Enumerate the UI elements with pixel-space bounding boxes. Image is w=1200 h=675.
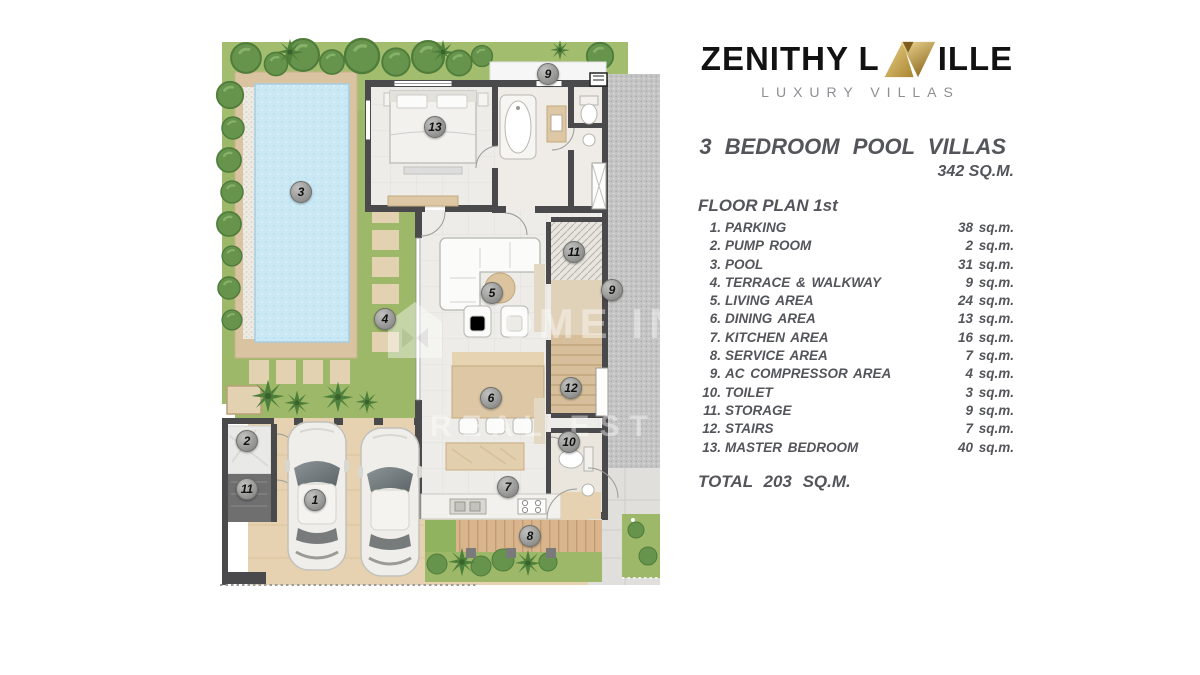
legend-label: TERRACE & WALKWAY: [725, 275, 942, 290]
legend-row: 7. KITCHEN AREA 16 sq.m.: [698, 330, 1016, 348]
legend-num: 3.: [698, 257, 725, 272]
legend-area: 9 sq.m.: [942, 275, 1016, 290]
legend-num: 8.: [698, 348, 725, 363]
legend-area: 31 sq.m.: [942, 257, 1016, 272]
legend-num: 9.: [698, 366, 725, 381]
plan-badge-terrace: 4: [374, 308, 396, 330]
legend-num: 1.: [698, 220, 725, 235]
legend-label: STAIRS: [725, 421, 942, 436]
legend-label: PARKING: [725, 220, 942, 235]
legend-num: 7.: [698, 330, 725, 345]
plan-badge-kitchen: 7: [497, 476, 519, 498]
legend-row: 3. POOL 31 sq.m.: [698, 257, 1016, 275]
watermark-line1: OME IN: [500, 300, 670, 347]
page-title: 3 BEDROOM POOL VILLAS: [698, 134, 1016, 160]
legend-num: 12.: [698, 421, 725, 436]
legend-row: 5. LIVING AREA 24 sq.m.: [698, 293, 1016, 311]
plan-badge-dining: 6: [480, 387, 502, 409]
legend-label: LIVING AREA: [725, 293, 942, 308]
brand-logo: ZENITHY L ILLE: [698, 40, 1016, 78]
legend-num: 4.: [698, 275, 725, 290]
legend-row: 6. DINING AREA 13 sq.m.: [698, 311, 1016, 329]
legend-row: 9. AC COMPRESSOR AREA 4 sq.m.: [698, 366, 1016, 384]
total-build-area: 342 SQ.M.: [698, 163, 1016, 181]
legend-row: 2. PUMP ROOM 2 sq.m.: [698, 238, 1016, 256]
legend-row: 1. PARKING 38 sq.m.: [698, 220, 1016, 238]
legend-num: 11.: [698, 403, 725, 418]
plan-badge-parking: 1: [304, 489, 326, 511]
legend-num: 13.: [698, 440, 725, 455]
floor-plan: OME IN REAL EST 1 2 3 4 5 6 7 8 9 9 10 1…: [200, 30, 670, 600]
legend-row: 13. MASTER BEDROOM 40 sq.m.: [698, 440, 1016, 458]
plan-badge-storage-stairs: 11: [563, 241, 585, 263]
plan-badge-living: 5: [481, 282, 503, 304]
legend-num: 2.: [698, 238, 725, 253]
legend-label: PUMP ROOM: [725, 238, 942, 253]
floor-plan-label: FLOOR PLAN 1st: [698, 196, 1016, 216]
legend-num: 10.: [698, 385, 725, 400]
plan-badge-storage-garage: 11: [236, 478, 258, 500]
legend-label: TOILET: [725, 385, 942, 400]
plan-badge-toilet: 10: [558, 431, 580, 453]
area-legend: 1. PARKING 38 sq.m. 2. PUMP ROOM 2 sq.m.…: [698, 220, 1016, 458]
legend-label: SERVICE AREA: [725, 348, 942, 363]
plan-badge-stairs: 12: [560, 377, 582, 399]
legend-area: 7 sq.m.: [942, 421, 1016, 436]
legend-num: 5.: [698, 293, 725, 308]
legend-area: 13 sq.m.: [942, 311, 1016, 326]
legend-area: 4 sq.m.: [942, 366, 1016, 381]
logo-subtitle: LUXURY VILLAS: [698, 84, 1016, 100]
legend-label: AC COMPRESSOR AREA: [725, 366, 942, 381]
legend-area: 24 sq.m.: [942, 293, 1016, 308]
plan-badge-master-bedroom: 13: [424, 116, 446, 138]
logo-text-right: ILLE: [938, 40, 1014, 78]
legend-area: 3 sq.m.: [942, 385, 1016, 400]
plan-badge-pool: 3: [290, 181, 312, 203]
legend-row: 8. SERVICE AREA 7 sq.m.: [698, 348, 1016, 366]
plan-badge-pump-room: 2: [236, 430, 258, 452]
legend-row: 12. STAIRS 7 sq.m.: [698, 421, 1016, 439]
legend-area: 16 sq.m.: [942, 330, 1016, 345]
legend-row: 11. STORAGE 9 sq.m.: [698, 403, 1016, 421]
legend-row: 10. TOILET 3 sq.m.: [698, 385, 1016, 403]
info-panel: ZENITHY L ILLE LUXURY VILLAS: [698, 40, 1016, 492]
total-area-line: TOTAL 203 SQ.M.: [698, 472, 1016, 492]
logo-text-left: ZENITHY L: [701, 40, 880, 78]
legend-area: 40 sq.m.: [942, 440, 1016, 455]
legend-label: POOL: [725, 257, 942, 272]
watermark-line2: REAL EST: [430, 410, 658, 443]
legend-label: STORAGE: [725, 403, 942, 418]
legend-area: 38 sq.m.: [942, 220, 1016, 235]
plan-badge-ac-right: 9: [601, 279, 623, 301]
legend-label: DINING AREA: [725, 311, 942, 326]
legend-area: 9 sq.m.: [942, 403, 1016, 418]
legend-label: KITCHEN AREA: [725, 330, 942, 345]
plan-badge-service: 8: [519, 525, 541, 547]
gold-triangle-logo-icon: [881, 40, 937, 78]
legend-area: 2 sq.m.: [942, 238, 1016, 253]
legend-num: 6.: [698, 311, 725, 326]
legend-label: MASTER BEDROOM: [725, 440, 942, 455]
legend-area: 7 sq.m.: [942, 348, 1016, 363]
plan-badge-ac-top: 9: [537, 63, 559, 85]
legend-row: 4. TERRACE & WALKWAY 9 sq.m.: [698, 275, 1016, 293]
page: OME IN REAL EST 1 2 3 4 5 6 7 8 9 9 10 1…: [0, 0, 1200, 675]
